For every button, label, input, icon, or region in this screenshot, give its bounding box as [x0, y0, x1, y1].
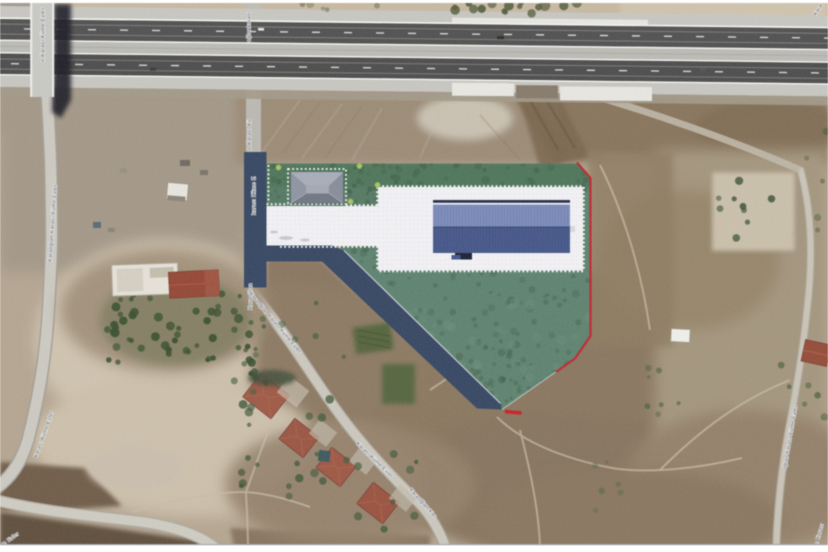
- svg-text:karası Küme E: karası Küme E: [252, 176, 258, 215]
- svg-text:n Karası Kü: n Karası Kü: [247, 119, 253, 150]
- svg-text:oğlankarası: oğlankarası: [247, 11, 253, 42]
- svg-text:n Karası Küme Evler: n Karası Küme Evler: [41, 8, 47, 62]
